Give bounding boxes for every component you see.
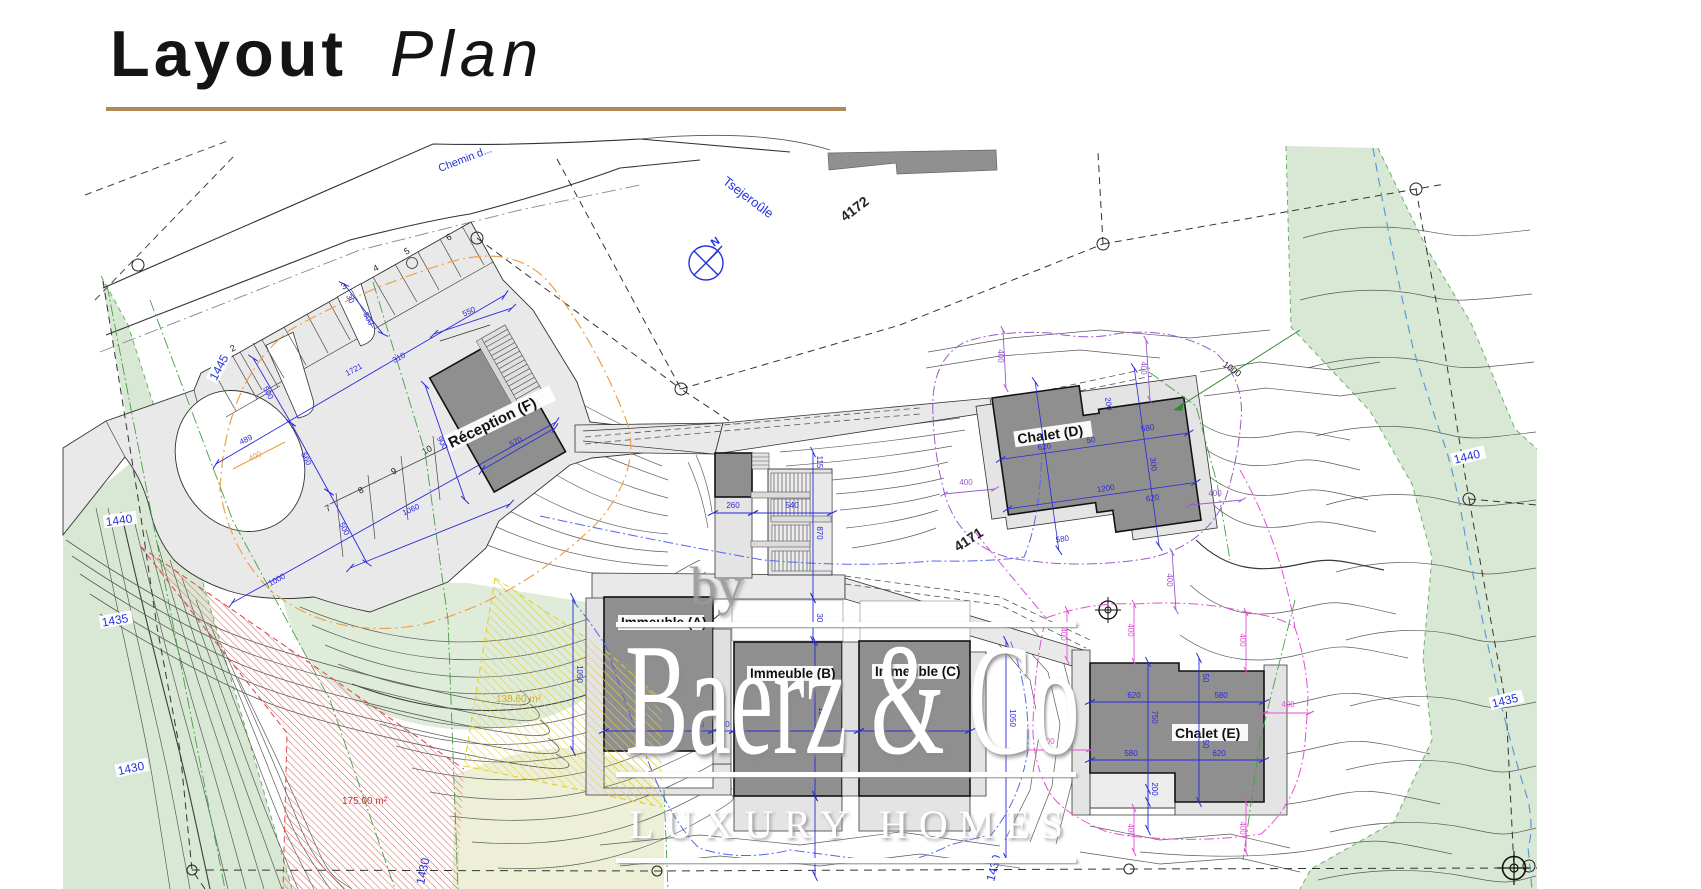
svg-text:400: 400 xyxy=(1238,633,1247,647)
svg-text:750: 750 xyxy=(1150,710,1159,724)
svg-text:620: 620 xyxy=(1037,441,1052,452)
svg-text:LUXURY HOMES: LUXURY HOMES xyxy=(629,802,1074,847)
svg-text:580: 580 xyxy=(1124,749,1138,758)
svg-text:115: 115 xyxy=(815,456,824,469)
svg-text:175.00 m²: 175.00 m² xyxy=(342,796,388,807)
svg-text:200: 200 xyxy=(1103,397,1114,412)
svg-text:400: 400 xyxy=(1208,489,1222,498)
svg-text:Baerz & Co: Baerz & Co xyxy=(625,612,1080,788)
svg-text:400: 400 xyxy=(1126,623,1135,637)
svg-text:50: 50 xyxy=(1201,674,1210,683)
svg-text:400: 400 xyxy=(1165,573,1174,587)
svg-text:by: by xyxy=(690,556,744,616)
svg-text:Plan: Plan xyxy=(390,17,544,90)
svg-text:580: 580 xyxy=(1055,534,1070,545)
svg-text:620: 620 xyxy=(1127,691,1141,700)
svg-text:400: 400 xyxy=(1139,361,1148,375)
svg-text:200: 200 xyxy=(1150,782,1159,796)
svg-text:620: 620 xyxy=(1145,493,1160,504)
svg-text:400: 400 xyxy=(1238,821,1247,835)
svg-text:540: 540 xyxy=(785,501,799,510)
svg-text:138.60 m²: 138.60 m² xyxy=(496,694,542,705)
svg-text:400: 400 xyxy=(996,349,1005,363)
svg-text:400: 400 xyxy=(1126,823,1135,837)
svg-text:Layout: Layout xyxy=(110,17,347,90)
svg-text:300: 300 xyxy=(1148,457,1159,472)
svg-text:870: 870 xyxy=(815,526,824,540)
svg-text:400: 400 xyxy=(1281,700,1295,709)
svg-text:620: 620 xyxy=(1212,749,1226,758)
svg-text:50: 50 xyxy=(1086,435,1097,445)
svg-text:580: 580 xyxy=(1140,423,1155,434)
svg-text:260: 260 xyxy=(726,501,740,510)
svg-text:50: 50 xyxy=(1201,740,1210,749)
svg-text:1050: 1050 xyxy=(575,665,584,683)
svg-text:400: 400 xyxy=(959,478,973,487)
svg-text:580: 580 xyxy=(1214,691,1228,700)
